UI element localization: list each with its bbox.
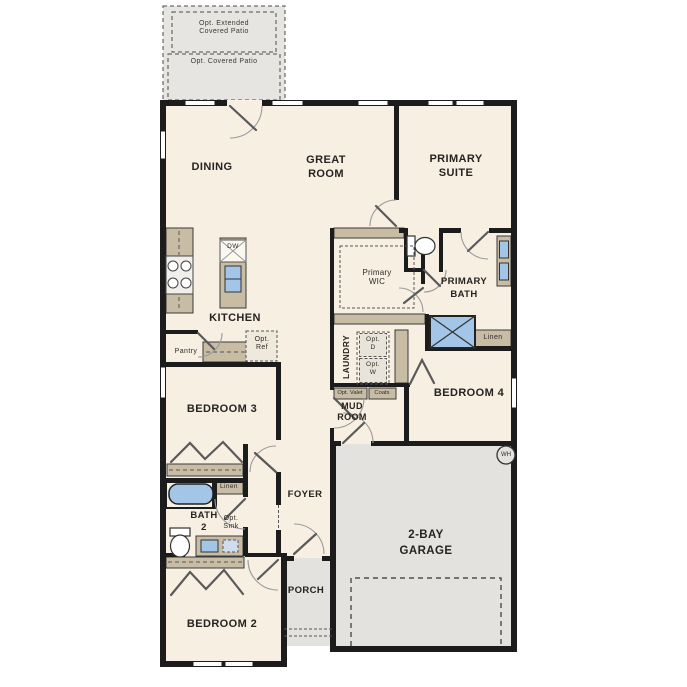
window [512, 378, 517, 408]
opt-valet-label: Opt. Valet [337, 390, 362, 397]
bath2-label: BATH 2 [190, 510, 217, 535]
window [272, 101, 303, 106]
opt-ref-label: Opt. Ref [255, 336, 270, 352]
great-room-label: GREAT ROOM [306, 153, 346, 182]
opt-extended-patio-label: Opt. Extended Covered Patio [199, 20, 249, 36]
wall-bedroom2-bottom [160, 661, 287, 667]
primary-wic-label: Primary WIC [363, 268, 392, 286]
dining-label: DINING [192, 161, 233, 174]
floor-plan: Opt. Extended Covered Patio Opt. Covered… [0, 0, 687, 687]
linen-primary-label: Linen [483, 334, 502, 342]
wall-exterior-right [511, 100, 517, 652]
wic-wall-top [334, 228, 404, 238]
bedroom2-label: BEDROOM 2 [187, 618, 257, 631]
primary-sink-icon [500, 263, 509, 280]
porch-label: PORCH [288, 586, 324, 597]
bedroom3-label: BEDROOM 3 [187, 403, 257, 416]
patio-door-opening [227, 100, 262, 106]
window [161, 131, 166, 159]
garage-label: 2-BAY GARAGE [400, 528, 453, 559]
wic-wall-bottom [334, 314, 425, 324]
primary-bath-label: PRIMARY BATH [441, 276, 487, 302]
coats-label: Coats [374, 390, 389, 397]
opt-washer-label: Opt. W [366, 361, 380, 377]
pantry-label: Pantry [175, 348, 198, 356]
opt-sink-label: Opt. Sink [223, 515, 238, 532]
opt-sink-icon [223, 540, 238, 552]
opt-covered-patio-label: Opt. Covered Patio [191, 58, 258, 66]
primary-sink-icon [500, 241, 509, 258]
wall-garage-bottom [330, 646, 517, 652]
window [428, 101, 453, 106]
water-heater-label: WH [501, 452, 511, 459]
wall-suite-divider [394, 106, 399, 200]
primary-suite-label: PRIMARY SUITE [429, 152, 482, 181]
foyer-label: FOYER [288, 490, 323, 501]
mud-room-label: MUD ROOM [337, 401, 367, 424]
dishwasher-label: DW [227, 243, 239, 250]
window [161, 367, 166, 398]
linen-bath2-label: Linen [220, 483, 238, 490]
wall-porch-left [281, 556, 287, 667]
kitchen-label: KITCHEN [209, 312, 261, 325]
opt-dryer-label: Opt. D [366, 336, 380, 352]
porch-floor [284, 558, 333, 646]
laundry-wall [395, 330, 408, 383]
window [358, 101, 388, 106]
tub-icon [169, 484, 213, 504]
laundry-label: LAUNDRY [342, 335, 352, 379]
window [456, 101, 484, 106]
window [193, 662, 222, 667]
bedroom4-label: BEDROOM 4 [434, 387, 504, 400]
bath2-sink-icon [201, 540, 218, 552]
window [225, 662, 253, 667]
window [185, 101, 215, 106]
